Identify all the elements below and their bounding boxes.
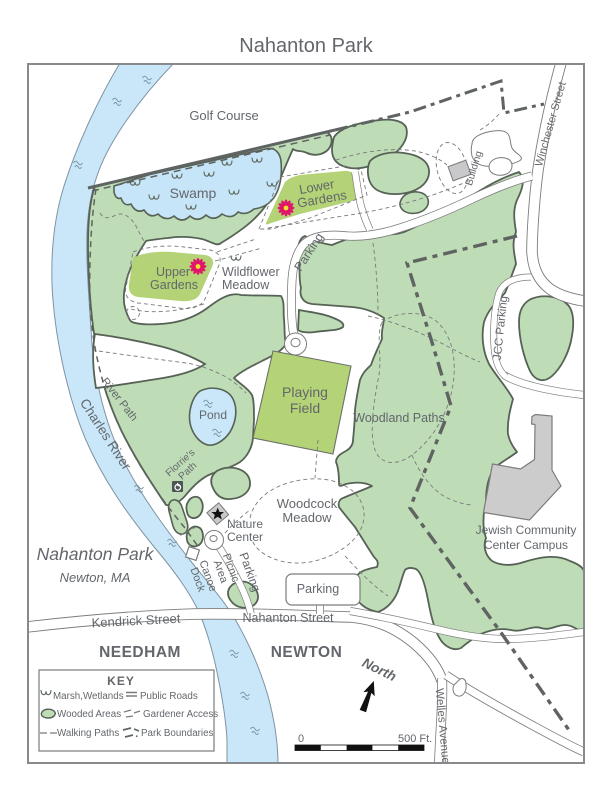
svg-text:Public Roads: Public Roads: [140, 691, 198, 702]
svg-text:Marsh,Wetlands: Marsh,Wetlands: [53, 691, 124, 702]
svg-text:NEWTON: NEWTON: [271, 644, 343, 661]
svg-text:Walking Paths: Walking Paths: [57, 728, 119, 739]
svg-text:Golf Course: Golf Course: [189, 108, 258, 123]
svg-text:Center: Center: [227, 530, 263, 544]
svg-text:Park Boundaries: Park Boundaries: [141, 728, 214, 739]
svg-text:Playing: Playing: [282, 384, 328, 400]
svg-text:Nahanton Park: Nahanton Park: [239, 35, 373, 57]
svg-text:KEY: KEY: [107, 674, 135, 688]
svg-text:Field: Field: [290, 400, 320, 416]
svg-text:Upper: Upper: [156, 265, 190, 279]
svg-text:0: 0: [298, 733, 304, 745]
svg-text:500 Ft.: 500 Ft.: [398, 733, 432, 745]
svg-text:Woodcock: Woodcock: [277, 496, 338, 511]
svg-text:Meadow: Meadow: [282, 510, 332, 525]
svg-text:Swamp: Swamp: [170, 185, 217, 201]
svg-text:NEEDHAM: NEEDHAM: [99, 644, 181, 661]
svg-text:Nahanton Park: Nahanton Park: [37, 544, 155, 564]
svg-text:Woodland Paths: Woodland Paths: [353, 411, 445, 425]
svg-text:Jewish Community: Jewish Community: [476, 523, 577, 537]
svg-text:Center Campus: Center Campus: [484, 538, 568, 552]
svg-text:Parking: Parking: [297, 582, 339, 596]
svg-text:North: North: [360, 655, 399, 684]
svg-text:Meadow: Meadow: [222, 278, 270, 292]
svg-text:Wildflower: Wildflower: [222, 265, 280, 279]
svg-text:Wooded Areas: Wooded Areas: [57, 709, 121, 720]
svg-text:Gardener Access: Gardener Access: [143, 709, 218, 720]
svg-text:Nahanton Street: Nahanton Street: [242, 611, 334, 625]
svg-text:Gardens: Gardens: [150, 278, 198, 292]
svg-text:Newton, MA: Newton, MA: [60, 570, 131, 585]
svg-text:Pond: Pond: [199, 408, 227, 422]
svg-text:Nature: Nature: [227, 517, 263, 531]
